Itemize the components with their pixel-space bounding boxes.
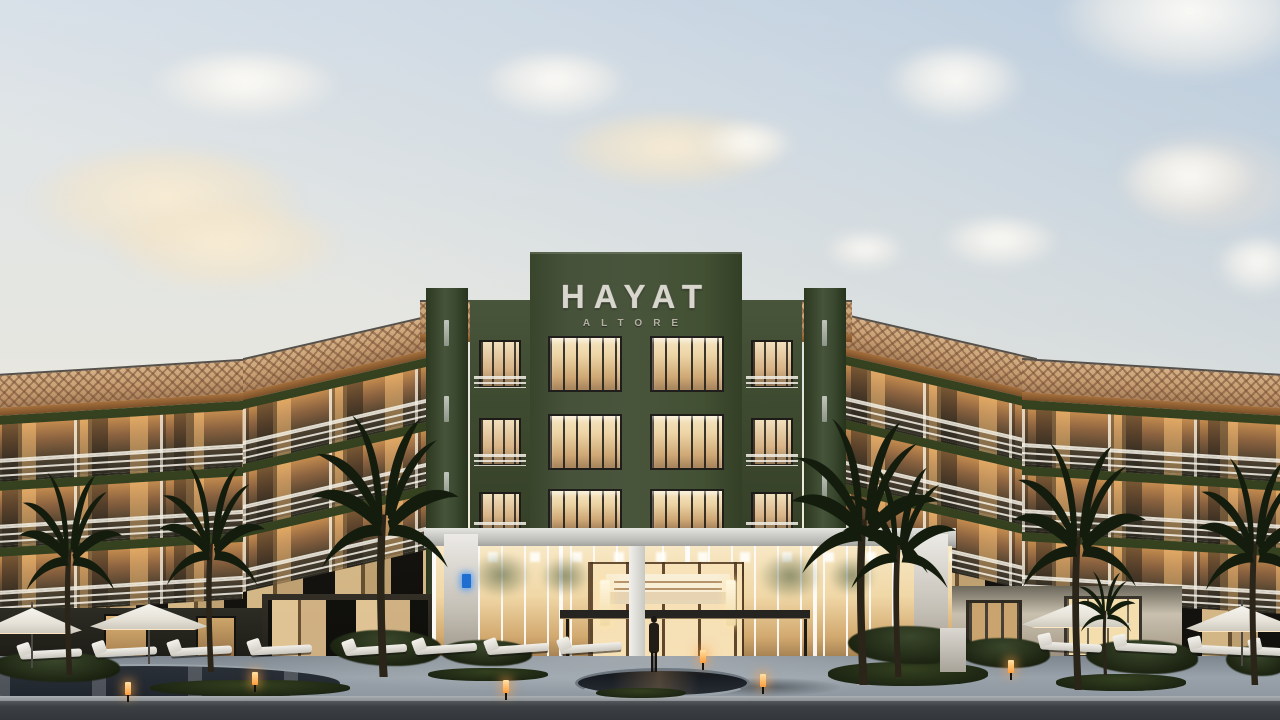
juliet-railing: [746, 376, 798, 388]
path-lantern: [503, 680, 509, 693]
hotel-exterior-photo: HAYAT ALTORE: [0, 0, 1280, 720]
palm-tree: [310, 412, 460, 677]
umbrella-pole: [148, 630, 150, 664]
hotel-sign-subtitle: ALTORE: [530, 318, 742, 329]
juliet-railing: [474, 454, 526, 466]
tower-left-flank: [470, 300, 530, 544]
central-tower: HAYAT ALTORE: [530, 252, 742, 544]
juliet-railing: [474, 376, 526, 388]
grass-strip: [150, 680, 350, 696]
cloud: [700, 125, 795, 167]
path-lantern: [760, 674, 766, 687]
exit-sign: [462, 574, 471, 588]
palm-tree: [842, 462, 957, 677]
hotel-sign-title: HAYAT: [530, 278, 742, 316]
tower-window: [548, 414, 622, 470]
palm-tree: [1196, 455, 1280, 685]
tower-window: [650, 336, 724, 392]
person-legs: [651, 652, 657, 672]
pilaster-joint: [822, 320, 827, 346]
pilaster-joint: [444, 320, 449, 346]
tower-window: [548, 489, 622, 531]
palm-tree: [1076, 570, 1136, 675]
reception-counter: [606, 574, 730, 604]
tower-window: [548, 336, 622, 392]
person-at-entrance: [648, 616, 660, 672]
glass-tree-reflection: [540, 556, 590, 596]
umbrella-tip: [148, 598, 150, 605]
person-body: [649, 623, 659, 653]
path-lantern: [125, 682, 131, 695]
entrance-lamp-panel: [600, 580, 610, 626]
palm-tree: [158, 462, 266, 672]
grass-strip: [596, 688, 686, 698]
entrance-canopy: [560, 610, 810, 619]
cloud: [480, 55, 630, 117]
tower-window: [650, 489, 724, 531]
glass-tree-reflection: [470, 552, 532, 598]
path-lantern: [252, 672, 258, 685]
person-head: [651, 616, 657, 623]
lobby-center-pier: [629, 546, 645, 672]
palm-tree: [18, 470, 123, 675]
street: [0, 701, 1280, 720]
path-lantern: [700, 650, 706, 663]
entrance-lamp-panel: [726, 580, 736, 626]
tower-window: [650, 414, 724, 470]
